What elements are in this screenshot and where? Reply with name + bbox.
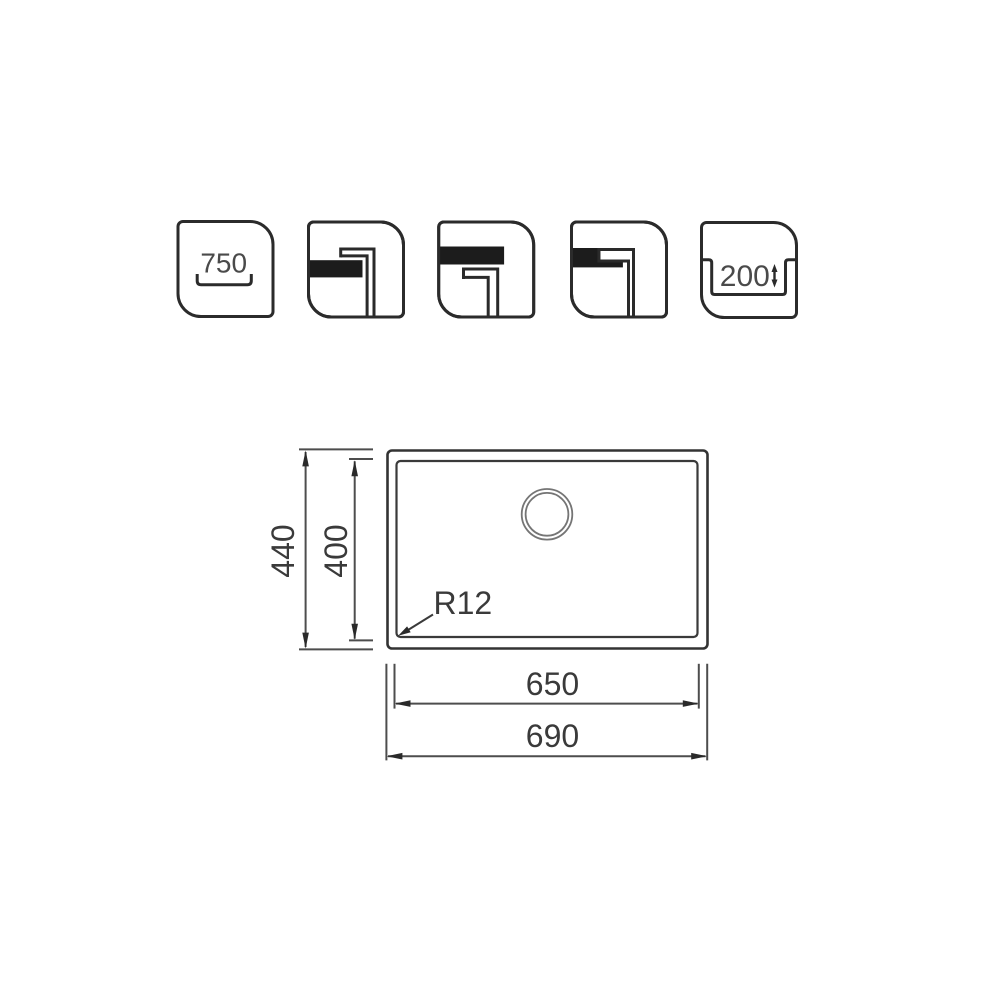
svg-text:690: 690 <box>526 718 579 754</box>
svg-text:440: 440 <box>265 524 301 577</box>
svg-text:400: 400 <box>318 524 354 577</box>
svg-text:200: 200 <box>720 260 770 293</box>
svg-text:650: 650 <box>526 666 579 702</box>
svg-text:750: 750 <box>200 248 247 279</box>
svg-text:R12: R12 <box>434 585 493 621</box>
